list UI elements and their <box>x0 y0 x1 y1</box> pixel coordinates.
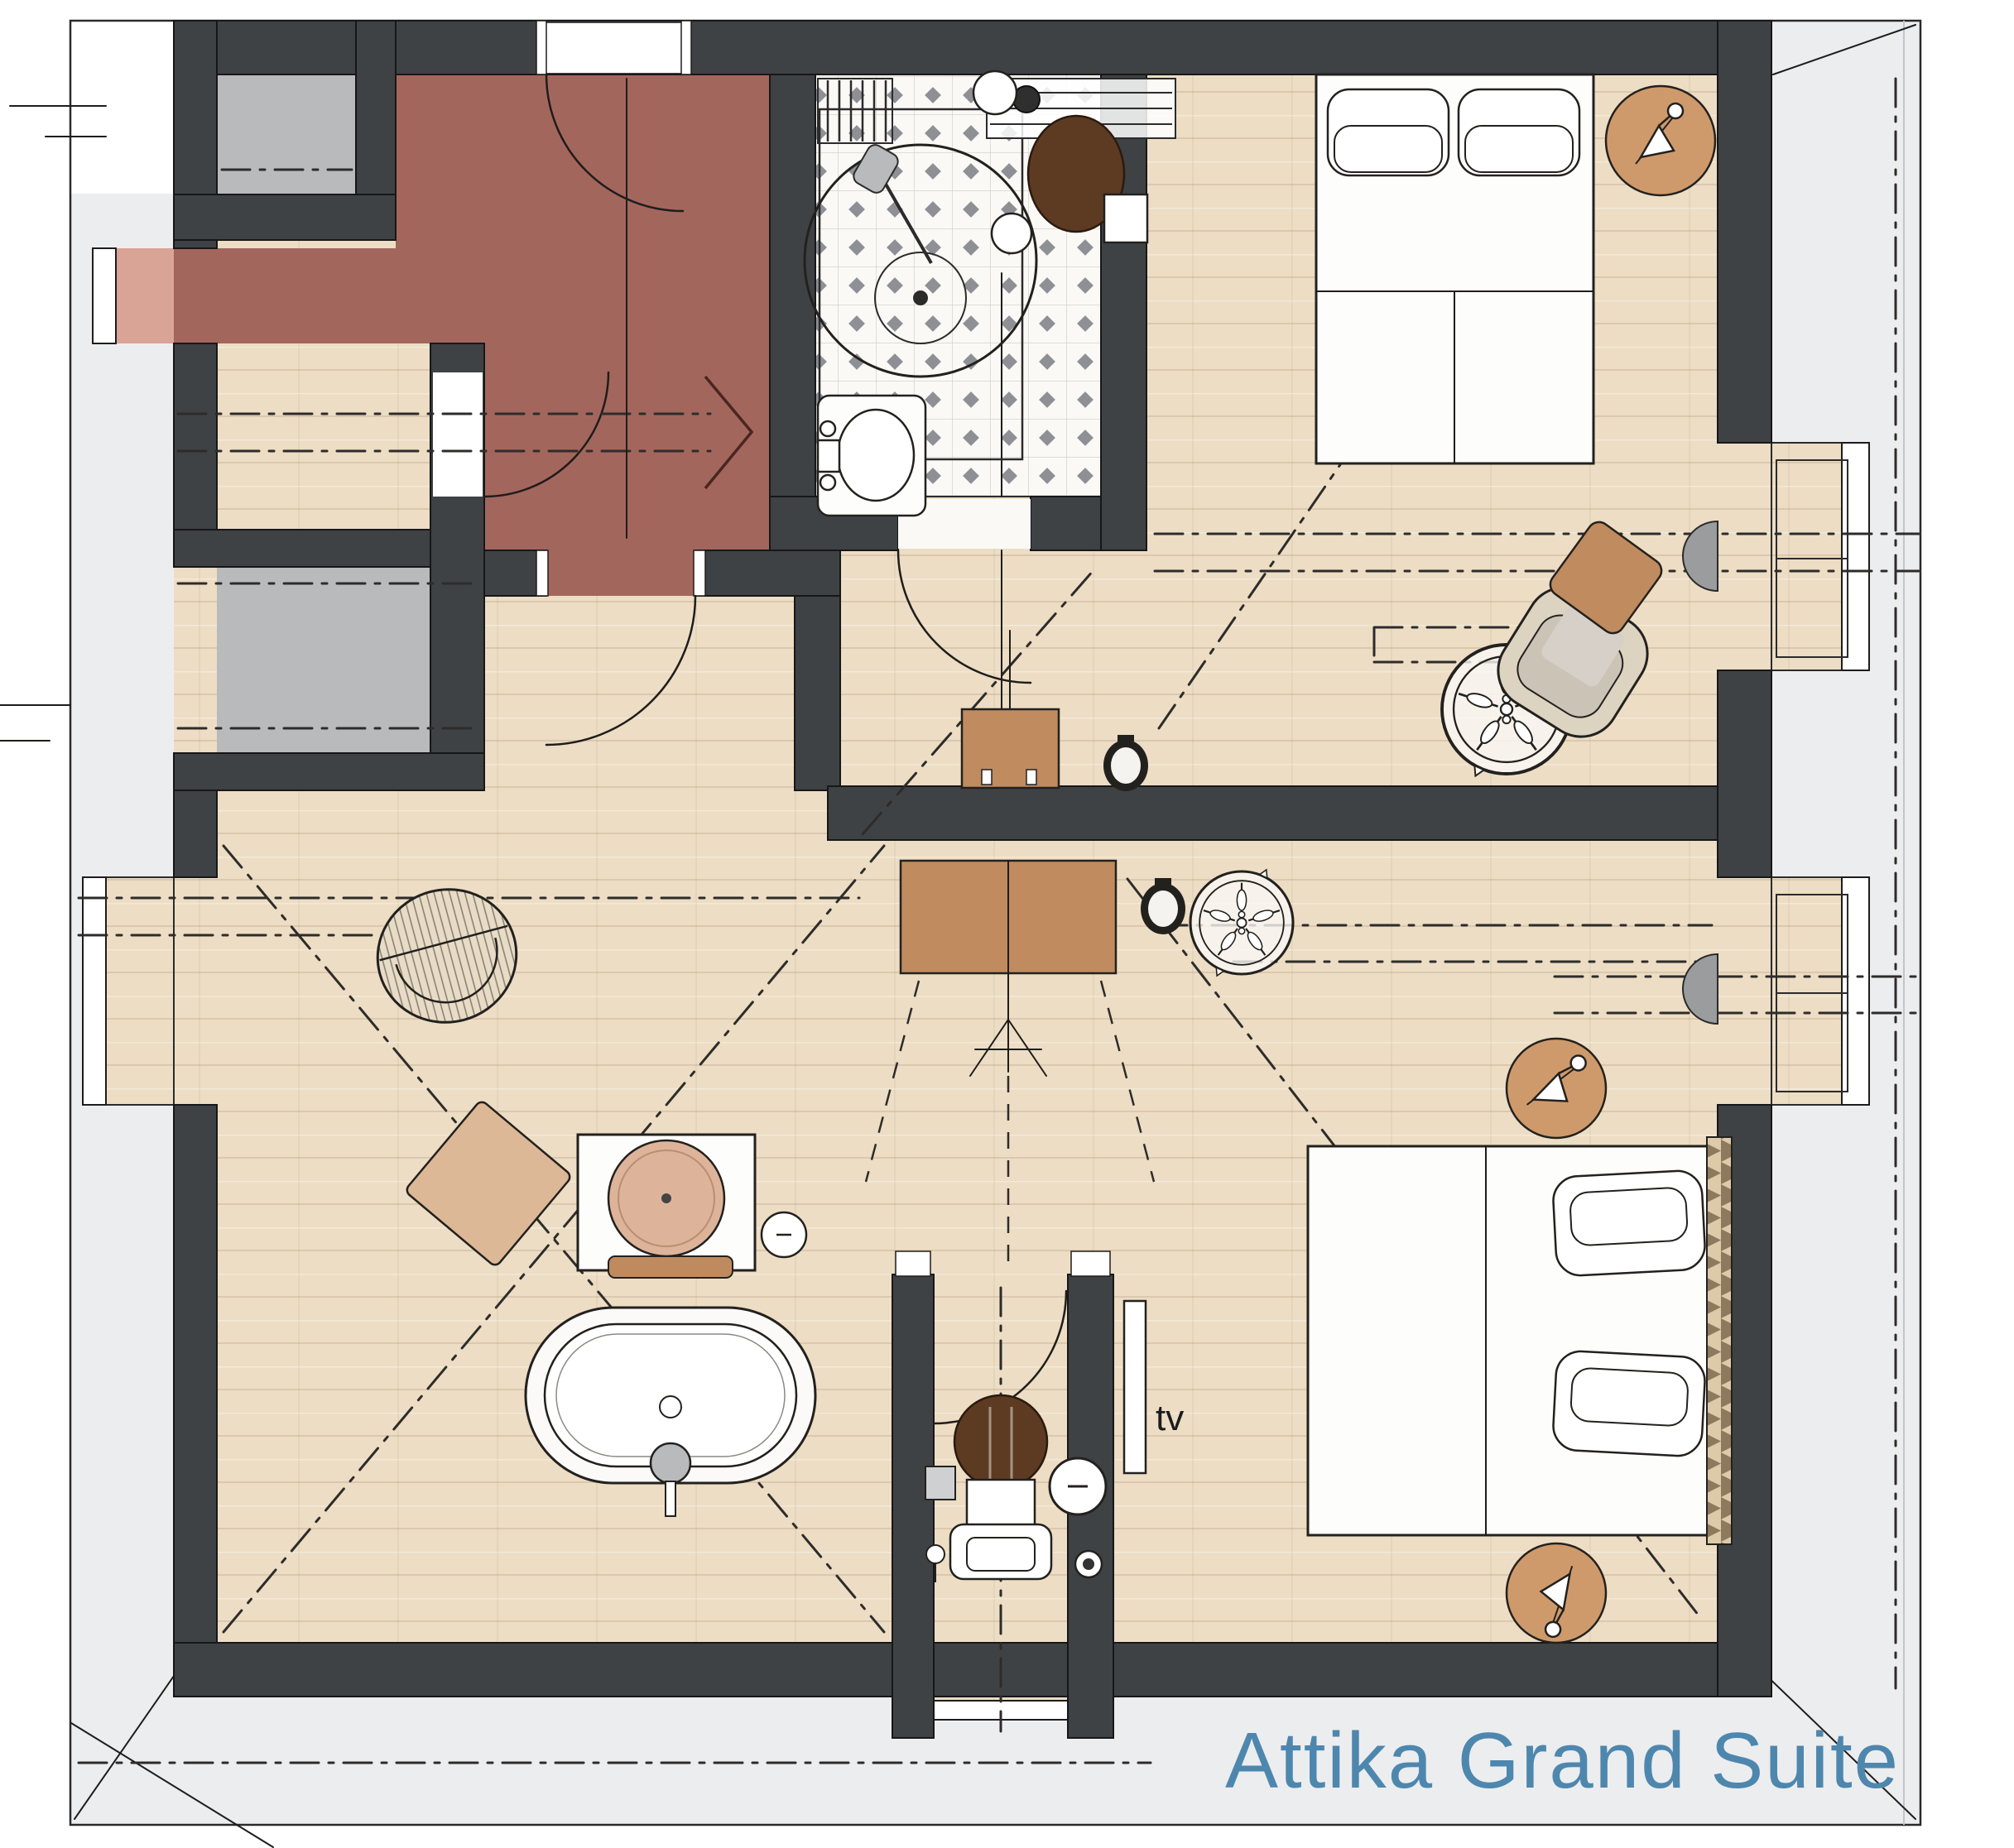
wall-right-b <box>1718 670 1771 877</box>
tv-label: tv <box>1156 1398 1184 1438</box>
shaft-room-lower-floor <box>217 567 430 753</box>
wall-middle <box>828 786 1718 840</box>
pillow-icon <box>1552 1350 1706 1457</box>
dormer-bay-2-floor <box>1771 877 1842 1105</box>
vanity-icon <box>578 1135 755 1278</box>
wc-jamb-right <box>1071 1251 1110 1276</box>
washbasin-icon <box>818 396 925 516</box>
flush-button-icon <box>1075 1551 1102 1577</box>
wall-hall-north <box>695 550 840 596</box>
dormer-bay-1-window <box>1842 443 1869 670</box>
floor-plan-drawing: tv Attika Grand Suite <box>0 0 2014 1848</box>
wall-left-b <box>174 343 217 530</box>
entry-jamb-left <box>536 21 546 74</box>
headboard <box>1707 1137 1732 1544</box>
stool-icon <box>762 1212 806 1257</box>
closet-door-gap <box>433 372 483 497</box>
wc-jamb-left <box>896 1251 930 1276</box>
wall-hall-west <box>795 596 840 790</box>
dormer-bay-2-window <box>1842 877 1869 1105</box>
left-dormer-bay-window <box>83 877 106 1105</box>
pillow-icon <box>1552 1169 1706 1276</box>
entry-door-gap <box>546 23 683 73</box>
toilet-paper-icon <box>1050 1458 1106 1514</box>
wall-bottom <box>174 1643 1771 1697</box>
entry-jamb-right <box>681 21 691 74</box>
corridor-jamb-right <box>694 550 705 596</box>
wall-fixture-icon <box>925 1466 955 1500</box>
wall-shaft2-top <box>174 530 430 567</box>
pink-dormer-floor <box>116 248 174 343</box>
shaft-room-upper-floor <box>217 74 356 194</box>
wall-shaft2-bottom <box>174 753 484 790</box>
dormer-bay-1-floor <box>1771 443 1842 670</box>
bedside-table-2 <box>1507 1039 1606 1138</box>
wall-top <box>174 21 1771 74</box>
wall-shaft1-bottom <box>174 194 396 240</box>
bedside-table-3 <box>1507 1543 1606 1643</box>
wall-tv-icon <box>1124 1301 1146 1473</box>
wall-left-c <box>174 790 217 877</box>
wall-wc-left <box>892 1274 934 1738</box>
wall-left-d <box>174 1105 217 1697</box>
pink-dormer-window <box>93 248 116 343</box>
suite-title: Attika Grand Suite <box>1225 1716 1900 1805</box>
pillow-icon <box>1334 126 1442 172</box>
corridor-jamb-left <box>536 550 548 596</box>
pillow-icon <box>1465 126 1573 172</box>
ceiling-fan-2-icon <box>1190 868 1293 977</box>
wall-right-a <box>1718 21 1771 443</box>
bedside-table-1 <box>1606 86 1715 195</box>
left-dormer-bay-floor <box>106 877 174 1105</box>
floor-plan-canvas: tv Attika Grand Suite <box>0 0 2014 1848</box>
bed-2 <box>1308 1137 1732 1544</box>
bed-1 <box>1316 74 1593 463</box>
